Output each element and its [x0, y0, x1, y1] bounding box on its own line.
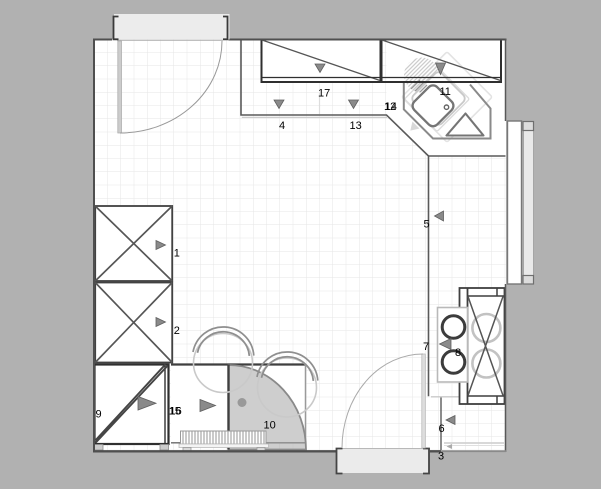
svg-text:1: 1: [174, 248, 180, 260]
svg-text:5: 5: [424, 219, 430, 231]
svg-text:2: 2: [174, 325, 180, 337]
svg-text:4: 4: [279, 120, 285, 132]
svg-text:14: 14: [385, 101, 397, 113]
svg-text:16: 16: [170, 406, 182, 418]
svg-text:6: 6: [439, 423, 445, 435]
svg-text:8: 8: [455, 347, 461, 359]
svg-text:10: 10: [264, 420, 276, 432]
svg-text:7: 7: [423, 341, 429, 353]
svg-text:13: 13: [350, 120, 362, 132]
svg-text:11: 11: [440, 86, 451, 98]
svg-text:9: 9: [96, 409, 102, 421]
svg-text:17: 17: [318, 88, 330, 100]
